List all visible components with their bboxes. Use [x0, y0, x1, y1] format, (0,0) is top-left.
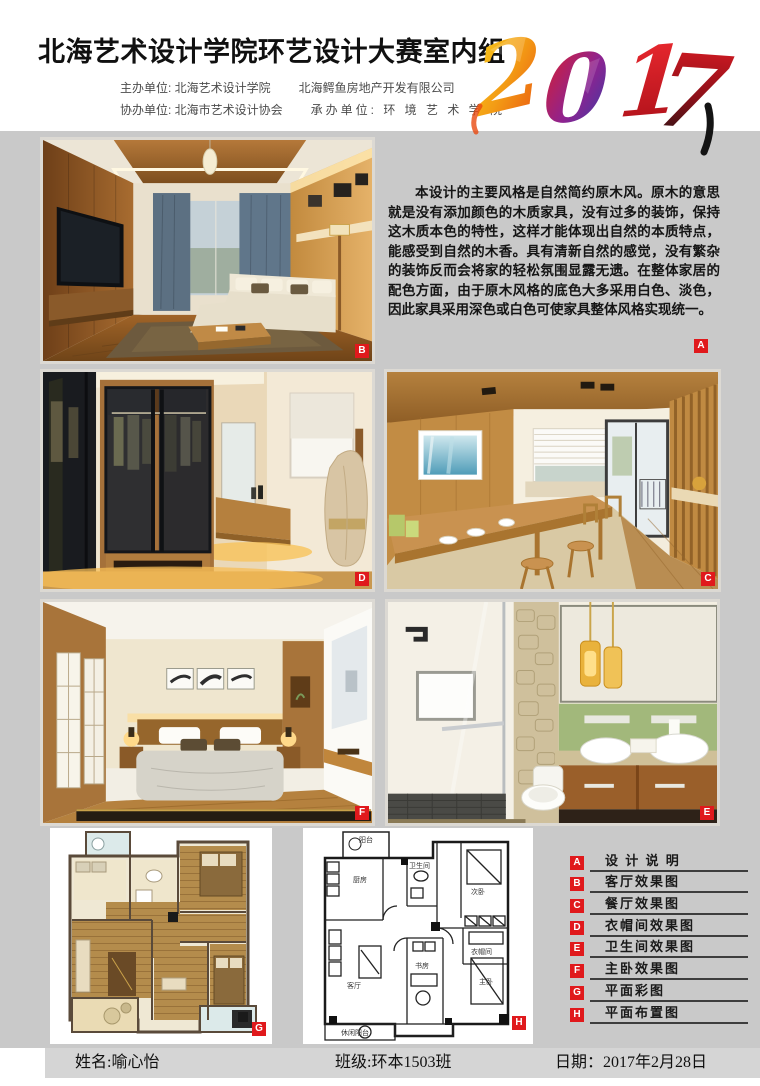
author-class: 班级:环本1503班	[335, 1048, 451, 1078]
legend-tag-e: E	[570, 942, 584, 956]
plan-layout: 阳台 厨房 卫生间 次卧 衣帽间 客厅 书房 主卧 休闲阳台 H	[303, 828, 533, 1044]
photo-bathroom: E	[385, 599, 720, 826]
legend-row-g: G 平面彩图	[568, 981, 748, 1003]
design-description-text: 本设计的主要风格是自然简约原木风。原木的意思就是没有添加颜色的木质家具，没有过多…	[388, 183, 720, 320]
legend-label-b: 客厅效果图	[590, 871, 748, 893]
competition-poster: 北海艺术设计学院环艺设计大赛室内组 主办单位: 北海艺术设计学院 北海鳄鱼房地产…	[0, 0, 760, 1086]
room-label-leisure: 休闲阳台	[341, 1028, 369, 1037]
photo-tag-e: E	[700, 806, 714, 820]
legend-tag-g: G	[570, 986, 584, 1000]
legend-row-b: B 客厅效果图	[568, 873, 748, 895]
legend-row-h: H 平面布置图	[568, 1003, 748, 1025]
design-description: 本设计的主要风格是自然简约原木风。原木的意思就是没有添加颜色的木质家具，没有过多…	[388, 183, 720, 320]
poster-date: 日期：2017年2月28日	[555, 1048, 707, 1078]
footer-bar: 姓名:喻心怡 班级:环本1503班 日期：2017年2月28日	[45, 1048, 760, 1078]
living-room-render	[43, 140, 372, 361]
legend-tag-h: H	[570, 1008, 584, 1022]
legend-row-a: A 设 计 说 明	[568, 851, 748, 873]
organizer-block: 主办单位: 北海艺术设计学院 北海鳄鱼房地产开发有限公司 协办单位: 北海市艺术…	[120, 77, 505, 121]
room-label-kitchen: 厨房	[353, 875, 367, 884]
cloakroom-render	[43, 372, 372, 589]
photo-tag-c: C	[701, 572, 715, 586]
legend-label-f: 主卧效果图	[590, 958, 748, 980]
digit-2: 2	[470, 13, 547, 139]
photo-cloakroom: D	[40, 369, 375, 592]
room-label-master: 主卧	[479, 977, 493, 986]
assisting-organizer: 协办单位: 北海市艺术设计协会	[120, 99, 283, 121]
photo-tag-f: F	[355, 806, 369, 820]
legend-label-c: 餐厅效果图	[590, 893, 748, 915]
legend-row-e: E 卫生间效果图	[568, 938, 748, 960]
photo-tag-d: D	[355, 572, 369, 586]
legend-tag-d: D	[570, 921, 584, 935]
legend-row-d: D 衣帽间效果图	[568, 916, 748, 938]
photo-tag-b: B	[355, 344, 369, 358]
photo-tag-g: G	[252, 1022, 266, 1036]
legend-tag-f: F	[570, 964, 584, 978]
photo-living-room: B	[40, 137, 375, 364]
layout-plan-drawing: 阳台 厨房 卫生间 次卧 衣帽间 客厅 书房 主卧 休闲阳台	[303, 828, 533, 1044]
legend-row-c: C 餐厅效果图	[568, 894, 748, 916]
photo-master-bedroom: F	[40, 599, 375, 826]
bathroom-render	[388, 602, 717, 823]
year-2017-logo: 2 0 1 7	[450, 10, 750, 160]
legend-tag-a: A	[570, 856, 584, 870]
bedroom-render	[43, 602, 372, 823]
room-label-bath: 卫生间	[409, 861, 430, 870]
room-label-study: 书房	[415, 961, 429, 970]
photo-dining-room: C	[384, 369, 721, 592]
plan-color: G	[50, 828, 272, 1044]
legend-tag-b: B	[570, 877, 584, 891]
legend-tag-c: C	[570, 899, 584, 913]
poster-title: 北海艺术设计学院环艺设计大赛室内组	[38, 30, 506, 69]
legend-row-f: F 主卧效果图	[568, 959, 748, 981]
section-tag-a: A	[694, 339, 708, 353]
legend-label-d: 衣帽间效果图	[590, 915, 748, 937]
legend: A 设 计 说 明 B 客厅效果图 C 餐厅效果图 D 衣帽间效果图 E 卫生间…	[568, 851, 748, 1025]
author-name: 姓名:喻心怡	[75, 1048, 159, 1078]
year-2017-graphic: 2 0 1 7	[450, 10, 750, 160]
digit-0: 0	[542, 30, 611, 146]
co-host-company: 北海鳄鱼房地产开发有限公司	[299, 77, 455, 99]
room-label-living: 客厅	[347, 981, 361, 990]
room-label-balcony: 阳台	[359, 835, 373, 844]
room-label-bedroom2: 次卧	[471, 887, 485, 896]
legend-label-a: 设 计 说 明	[590, 850, 748, 872]
photo-tag-h: H	[512, 1016, 526, 1030]
host-organizer: 主办单位: 北海艺术设计学院	[120, 77, 271, 99]
room-label-cloak: 衣帽间	[471, 947, 492, 956]
dining-room-render	[387, 372, 718, 589]
legend-label-e: 卫生间效果图	[590, 936, 748, 958]
color-plan-drawing	[50, 828, 272, 1044]
legend-label-g: 平面彩图	[590, 980, 748, 1002]
legend-label-h: 平面布置图	[590, 1002, 748, 1024]
